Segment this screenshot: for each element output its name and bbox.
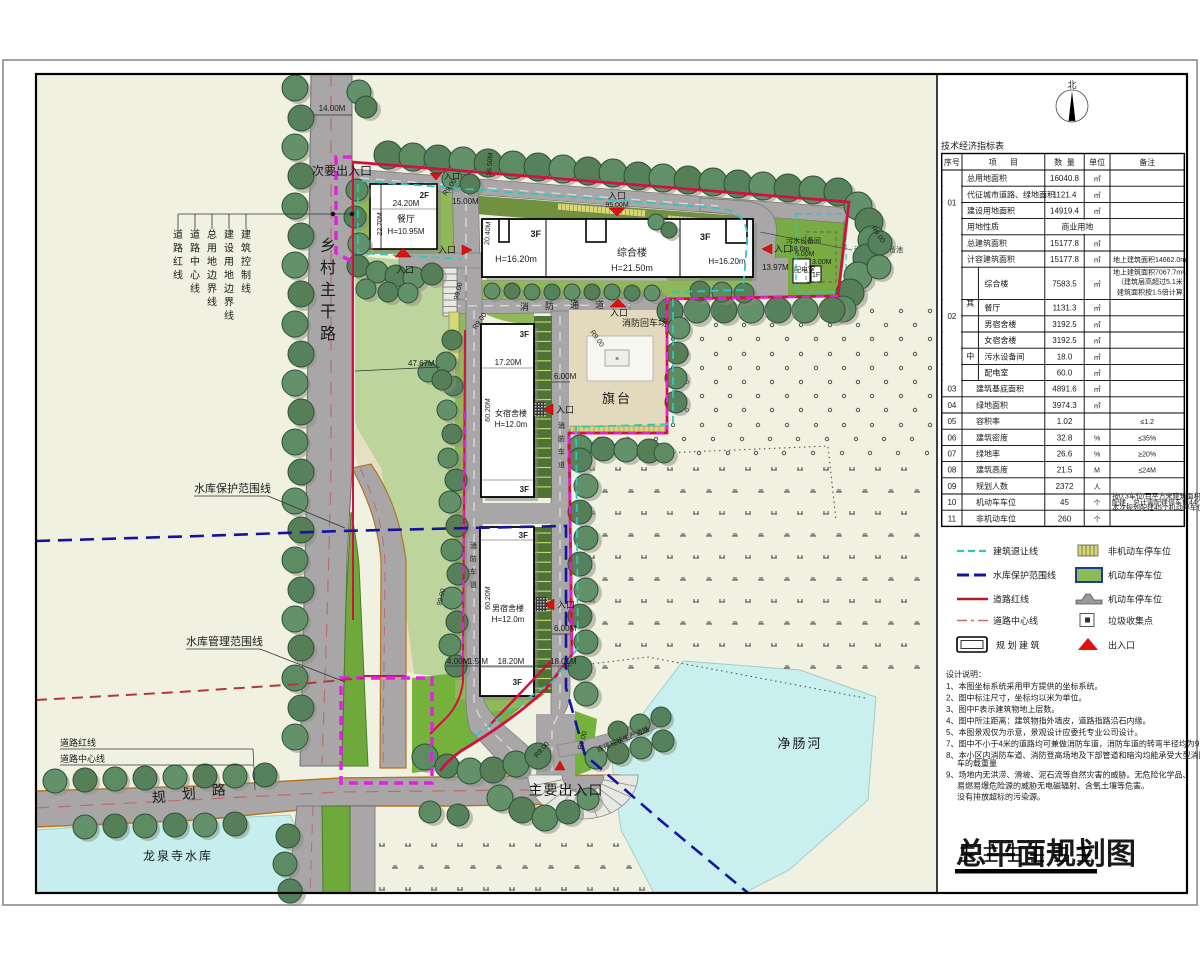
svg-text:3、图中F表示建筑物地上层数。: 3、图中F表示建筑物地上层数。 <box>946 704 1059 714</box>
svg-text:18.0: 18.0 <box>1057 352 1073 361</box>
svg-text:水库保护范围线: 水库保护范围线 <box>993 570 1056 581</box>
svg-text:净肠河: 净肠河 <box>777 736 822 751</box>
svg-text:22.70M: 22.70M <box>377 212 384 236</box>
svg-text:消防回车场: 消防回车场 <box>622 317 667 328</box>
svg-text:机动车停车位: 机动车停车位 <box>1108 594 1162 605</box>
svg-text:3F: 3F <box>530 229 541 239</box>
svg-text:3.00M: 3.00M <box>812 259 832 266</box>
svg-text:本次规划配建45个机动停车位: 本次规划配建45个机动停车位 <box>1112 503 1200 512</box>
svg-text:1.02: 1.02 <box>1057 417 1073 426</box>
svg-text:H=16.20m: H=16.20m <box>708 257 745 266</box>
svg-text:18.01M: 18.01M <box>550 657 577 666</box>
svg-text:道: 道 <box>558 460 565 469</box>
svg-text:女宿舍楼: 女宿舍楼 <box>984 335 1016 345</box>
svg-text:47.67M: 47.67M <box>408 359 435 368</box>
svg-text:60.0: 60.0 <box>1057 369 1073 378</box>
svg-text:15.00M: 15.00M <box>452 197 479 206</box>
svg-text:H=21.50m: H=21.50m <box>611 263 653 273</box>
svg-text:15177.8: 15177.8 <box>1050 255 1079 264</box>
svg-text:线: 线 <box>224 309 234 322</box>
svg-text:260: 260 <box>1058 514 1072 523</box>
svg-text:4.00M: 4.00M <box>447 657 470 666</box>
svg-text:道: 道 <box>190 228 200 241</box>
svg-text:≤24M: ≤24M <box>1138 468 1156 475</box>
svg-text:非机动车停车位: 非机动车停车位 <box>1108 546 1171 557</box>
svg-text:机动车停车位: 机动车停车位 <box>1108 570 1162 581</box>
svg-text:龙泉寺水库: 龙泉寺水库 <box>143 848 213 863</box>
svg-text:入口: 入口 <box>557 600 575 610</box>
svg-text:入口: 入口 <box>774 244 792 254</box>
svg-text:用: 用 <box>224 257 234 268</box>
svg-text:主: 主 <box>320 281 336 299</box>
svg-text:筑: 筑 <box>241 242 251 255</box>
svg-text:地上建筑面积7067.7m².: 地上建筑面积7067.7m². <box>1113 268 1187 277</box>
svg-text:3F: 3F <box>519 531 528 540</box>
svg-text:总用地面积: 总用地面积 <box>967 173 1007 183</box>
svg-text:建筑高度: 建筑高度 <box>976 465 1008 475</box>
svg-text:09: 09 <box>947 482 956 491</box>
svg-text:代征城市道路、绿地面积: 代征城市道路、绿地面积 <box>967 189 1055 199</box>
svg-text:≤35%: ≤35% <box>1138 435 1156 442</box>
svg-text:计容建筑面积: 计容建筑面积 <box>967 254 1015 264</box>
svg-text:路: 路 <box>173 242 183 255</box>
svg-text:㎡: ㎡ <box>1094 321 1101 329</box>
svg-text:建筑面积按1.5倍计算）: 建筑面积按1.5倍计算） <box>1117 288 1190 297</box>
svg-text:16040.8: 16040.8 <box>1050 174 1079 183</box>
svg-text:4、图中所注距离：建筑物指外墙皮，道路指路沿石内缘。: 4、图中所注距离：建筑物指外墙皮，道路指路沿石内缘。 <box>946 716 1150 726</box>
svg-text:1、本图坐标系统采用甲方提供的坐标系统。: 1、本图坐标系统采用甲方提供的坐标系统。 <box>946 681 1102 691</box>
svg-text:干: 干 <box>320 304 336 321</box>
svg-text:绿地率: 绿地率 <box>976 449 1000 459</box>
svg-text:个: 个 <box>1094 515 1101 523</box>
svg-text:入口: 入口 <box>556 405 574 415</box>
svg-text:入口: 入口 <box>608 191 626 201</box>
svg-text:备注: 备注 <box>1139 157 1155 167</box>
svg-text:㎡: ㎡ <box>1094 208 1101 216</box>
svg-text:用: 用 <box>207 244 217 255</box>
svg-text:H=10.95M: H=10.95M <box>387 227 424 236</box>
svg-text:心: 心 <box>190 270 200 282</box>
svg-text:序号: 序号 <box>944 157 960 167</box>
svg-text:01: 01 <box>947 198 956 207</box>
svg-text:26.6: 26.6 <box>1057 450 1073 459</box>
svg-text:3F: 3F <box>700 232 711 242</box>
svg-text:北: 北 <box>1067 80 1076 90</box>
svg-text:04: 04 <box>947 401 956 410</box>
svg-text:水库管理范围线: 水库管理范围线 <box>186 634 263 648</box>
svg-text:消: 消 <box>470 541 477 550</box>
svg-text:17.20M: 17.20M <box>495 358 522 367</box>
svg-text:线: 线 <box>207 296 217 309</box>
svg-text:10: 10 <box>947 498 956 507</box>
svg-text:机动车车位: 机动车车位 <box>976 497 1016 507</box>
svg-text:易燃易爆危险源的威胁无电磁辐射、含氧土壤等危害。: 易燃易爆危险源的威胁无电磁辐射、含氧土壤等危害。 <box>957 781 1149 791</box>
svg-text:综合楼: 综合楼 <box>617 246 647 259</box>
svg-text:规 划 建 筑: 规 划 建 筑 <box>996 640 1040 651</box>
svg-text:3192.5: 3192.5 <box>1052 336 1077 345</box>
svg-text:车: 车 <box>558 447 565 456</box>
svg-text:入口: 入口 <box>396 265 414 275</box>
svg-text:男宿舍楼: 男宿舍楼 <box>492 603 524 613</box>
svg-text:03: 03 <box>947 385 956 394</box>
svg-text:界: 界 <box>207 283 217 295</box>
svg-text:总建筑面积: 总建筑面积 <box>967 238 1007 248</box>
svg-text:11: 11 <box>948 514 957 523</box>
svg-text:配电室: 配电室 <box>984 368 1008 378</box>
svg-text:综合楼: 综合楼 <box>984 278 1008 288</box>
svg-text:中: 中 <box>966 351 974 361</box>
svg-text:18.0m: 18.0m <box>790 246 810 253</box>
svg-text:≥20%: ≥20% <box>1138 452 1156 459</box>
svg-text:车: 车 <box>470 567 477 576</box>
svg-text:%: % <box>1094 435 1100 442</box>
svg-text:地上建筑面积14662.0m²: 地上建筑面积14662.0m² <box>1113 255 1189 264</box>
svg-text:6.00M: 6.00M <box>554 624 577 633</box>
svg-text:05: 05 <box>947 417 956 426</box>
svg-text:㎡: ㎡ <box>1094 256 1101 264</box>
svg-text:㎡: ㎡ <box>1094 305 1101 313</box>
svg-text:㎡: ㎡ <box>1094 240 1101 248</box>
svg-text:旗台: 旗台 <box>602 391 632 406</box>
svg-text:道路红线: 道路红线 <box>993 594 1029 605</box>
svg-text:3F: 3F <box>520 330 529 339</box>
svg-text:H=12.0m: H=12.0m <box>495 420 528 429</box>
svg-text:×: × <box>615 356 619 363</box>
svg-text:2、图中标注尺寸，坐标均以米为单位。: 2、图中标注尺寸，坐标均以米为单位。 <box>946 693 1086 703</box>
svg-text:㎡: ㎡ <box>1094 370 1101 378</box>
svg-text:5、本图景观仅为示意，景观设计应委托专业公司设计。: 5、本图景观仅为示意，景观设计应委托专业公司设计。 <box>946 727 1142 737</box>
svg-text:边: 边 <box>224 283 234 295</box>
svg-text:建: 建 <box>241 228 251 241</box>
svg-text:㎡: ㎡ <box>1094 337 1101 345</box>
svg-text:3F: 3F <box>513 678 522 687</box>
svg-text:21.5: 21.5 <box>1057 466 1073 475</box>
svg-text:道路红线: 道路红线 <box>60 737 96 748</box>
svg-text:防: 防 <box>470 554 477 563</box>
svg-text:路: 路 <box>320 325 336 343</box>
svg-text:车的载重量: 车的载重量 <box>957 758 997 768</box>
svg-text:线: 线 <box>241 282 251 295</box>
svg-text:线: 线 <box>190 282 200 295</box>
svg-text:6.00M: 6.00M <box>554 372 577 381</box>
svg-text:15177.8: 15177.8 <box>1050 239 1079 248</box>
svg-text:主要出入口: 主要出入口 <box>529 782 604 798</box>
svg-text:1121.4: 1121.4 <box>1053 190 1077 199</box>
svg-text:60.20M: 60.20M <box>485 586 492 610</box>
svg-text:㎡: ㎡ <box>1094 402 1101 410</box>
svg-text:界: 界 <box>224 297 234 309</box>
svg-text:个: 个 <box>1094 499 1101 507</box>
svg-text:总: 总 <box>207 228 217 241</box>
svg-text:线: 线 <box>173 269 183 282</box>
svg-text:数 量: 数 量 <box>1054 157 1074 167</box>
svg-text:餐厅: 餐厅 <box>397 213 415 224</box>
svg-text:07: 07 <box>947 450 956 459</box>
svg-text:地: 地 <box>207 255 217 268</box>
svg-text:13.97M: 13.97M <box>762 263 789 272</box>
svg-text:建筑退让线: 建筑退让线 <box>993 546 1038 557</box>
svg-text:9、场地内无洪涝、滑坡、泥石流等自然灾害的威胁。无危险化学品: 9、场地内无洪涝、滑坡、泥石流等自然灾害的威胁。无危险化学品、 <box>946 770 1190 780</box>
svg-text:路: 路 <box>211 782 226 799</box>
svg-text:边: 边 <box>207 270 217 282</box>
svg-text:45: 45 <box>1060 498 1069 507</box>
svg-text:其: 其 <box>966 299 974 308</box>
svg-text:绿地面积: 绿地面积 <box>976 400 1008 410</box>
svg-text:村: 村 <box>320 259 336 277</box>
svg-text:建筑密度: 建筑密度 <box>976 432 1008 442</box>
svg-text:1131.3: 1131.3 <box>1053 304 1077 313</box>
svg-text:06: 06 <box>947 433 956 442</box>
svg-text:3F: 3F <box>520 485 529 494</box>
svg-text:建设用地面积: 建设用地面积 <box>967 206 1015 216</box>
svg-text:道: 道 <box>470 580 477 589</box>
svg-text:男宿舍楼: 男宿舍楼 <box>984 319 1016 329</box>
svg-text:项 目: 项 目 <box>989 158 1018 167</box>
svg-text:24.20M: 24.20M <box>393 199 420 208</box>
svg-text:单位: 单位 <box>1089 157 1105 167</box>
svg-text:女宿舍楼: 女宿舍楼 <box>495 408 527 418</box>
svg-text:≤1.2: ≤1.2 <box>1140 419 1154 426</box>
svg-text:02: 02 <box>947 312 956 321</box>
svg-text:制: 制 <box>241 269 251 282</box>
svg-text:路: 路 <box>190 242 200 255</box>
svg-text:60.20M: 60.20M <box>485 398 492 422</box>
svg-text:08: 08 <box>947 466 956 475</box>
svg-text:红: 红 <box>173 255 183 268</box>
svg-text:14.00M: 14.00M <box>319 104 346 113</box>
svg-text:㎡: ㎡ <box>1094 280 1101 288</box>
svg-text:中: 中 <box>190 255 200 268</box>
svg-text:3192.5: 3192.5 <box>1052 320 1077 329</box>
svg-text:道路中心线: 道路中心线 <box>993 615 1038 626</box>
svg-text:H=16.20m: H=16.20m <box>495 254 537 264</box>
svg-text:容积率: 容积率 <box>976 416 1000 426</box>
svg-text:设: 设 <box>224 243 234 255</box>
svg-text:1.5 M: 1.5 M <box>468 657 488 666</box>
svg-text:建: 建 <box>224 228 234 241</box>
svg-text:消: 消 <box>558 421 565 430</box>
svg-text:规: 规 <box>151 789 166 806</box>
svg-text:H=12.0m: H=12.0m <box>492 615 525 624</box>
svg-text:出入口: 出入口 <box>1108 640 1135 651</box>
svg-text:㎡: ㎡ <box>1094 191 1101 199</box>
svg-text:通: 通 <box>570 300 579 310</box>
svg-text:污水设备间: 污水设备间 <box>984 351 1024 361</box>
svg-text:M: M <box>1094 468 1100 475</box>
svg-text:入口: 入口 <box>610 308 628 318</box>
svg-text:2372: 2372 <box>1056 482 1074 491</box>
svg-text:入口: 入口 <box>438 245 456 255</box>
svg-text:建筑基底面积: 建筑基底面积 <box>976 384 1024 394</box>
svg-text:设计说明：: 设计说明： <box>946 669 986 679</box>
svg-text:规划人数: 规划人数 <box>976 481 1008 491</box>
svg-text:18.20M: 18.20M <box>498 657 525 666</box>
svg-text:32.8: 32.8 <box>1057 433 1073 442</box>
svg-text:餐厅: 餐厅 <box>984 304 1000 313</box>
svg-text:非机动车位: 非机动车位 <box>976 513 1016 523</box>
svg-text:消: 消 <box>520 301 529 312</box>
svg-text:2F: 2F <box>420 191 429 200</box>
svg-text:没有排放超标的污染源。: 没有排放超标的污染源。 <box>957 792 1045 802</box>
svg-text:乡: 乡 <box>320 238 336 255</box>
svg-text:商业用地: 商业用地 <box>1061 222 1093 232</box>
svg-text:㎡: ㎡ <box>1094 386 1101 394</box>
svg-text:防: 防 <box>545 300 554 311</box>
svg-text:总平面规划图: 总平面规划图 <box>956 838 1136 871</box>
svg-text:（建筑层高超过5.1米，: （建筑层高超过5.1米， <box>1117 277 1190 286</box>
svg-text:控: 控 <box>241 255 251 268</box>
svg-text:地: 地 <box>224 269 234 282</box>
svg-text:1F: 1F <box>812 272 820 279</box>
svg-text:道: 道 <box>595 299 604 310</box>
svg-text:水库保护范围线: 水库保护范围线 <box>194 481 271 495</box>
svg-text:防: 防 <box>558 434 565 443</box>
svg-text:%: % <box>1094 452 1100 459</box>
svg-text:用地性质: 用地性质 <box>967 222 999 232</box>
svg-text:垃圾收集点: 垃圾收集点 <box>1108 615 1153 626</box>
svg-text:道: 道 <box>173 228 183 241</box>
svg-text:7583.5: 7583.5 <box>1052 279 1077 288</box>
svg-text:技术经济指标表: 技术经济指标表 <box>941 140 1004 151</box>
svg-text:7、图中不小于4米的道路均可兼做消防车道，消防车道的转弯半径: 7、图中不小于4米的道路均可兼做消防车道，消防车道的转弯半径均为9米。 <box>946 739 1200 749</box>
svg-text:14919.4: 14919.4 <box>1050 207 1079 216</box>
svg-text:道路中心线: 道路中心线 <box>60 753 105 764</box>
svg-text:次要出入口: 次要出入口 <box>312 164 372 178</box>
svg-text:人: 人 <box>1094 483 1101 491</box>
svg-text:3974.3: 3974.3 <box>1052 401 1077 410</box>
svg-text:㎡: ㎡ <box>1094 353 1101 361</box>
svg-text:划: 划 <box>181 785 196 802</box>
svg-text:㎡: ㎡ <box>1094 175 1101 183</box>
svg-text:4891.6: 4891.6 <box>1052 385 1077 394</box>
